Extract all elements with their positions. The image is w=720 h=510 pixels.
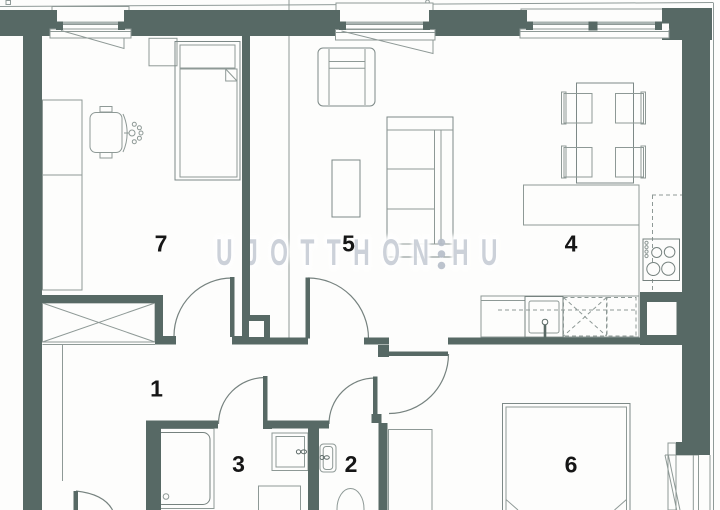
svg-text:6: 6 — [565, 452, 578, 478]
svg-text:1: 1 — [150, 376, 163, 402]
svg-text:3: 3 — [232, 451, 245, 477]
svg-text:4: 4 — [565, 231, 578, 257]
svg-text:HU: HU — [452, 231, 510, 273]
svg-text:7: 7 — [155, 231, 168, 257]
svg-text:5: 5 — [342, 231, 355, 257]
svg-text:2: 2 — [345, 451, 358, 477]
